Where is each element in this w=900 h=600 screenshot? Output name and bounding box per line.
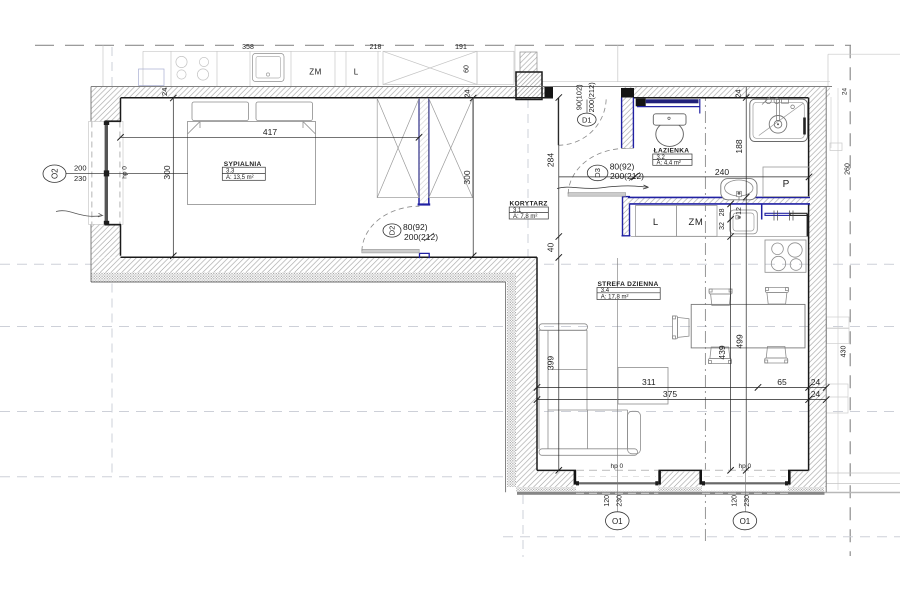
- svg-text:240: 240: [715, 167, 729, 177]
- svg-text:O1: O1: [612, 517, 623, 526]
- svg-text:90(102): 90(102): [574, 84, 583, 110]
- svg-text:L: L: [354, 68, 359, 77]
- svg-text:hp 0: hp 0: [610, 463, 623, 470]
- svg-text:3.1: 3.1: [513, 208, 522, 214]
- svg-text:191: 191: [455, 44, 467, 51]
- svg-text:230: 230: [616, 495, 623, 507]
- svg-text:hp 0: hp 0: [738, 463, 751, 470]
- svg-text:L: L: [653, 217, 658, 228]
- svg-text:80(92): 80(92): [610, 162, 635, 172]
- svg-text:200(212): 200(212): [404, 232, 438, 242]
- svg-text:D2: D2: [388, 226, 397, 236]
- svg-text:120: 120: [604, 495, 611, 507]
- svg-text:32: 32: [719, 222, 726, 230]
- svg-text:A: 4,4 m²: A: 4,4 m²: [657, 160, 681, 166]
- svg-text:358: 358: [242, 44, 254, 51]
- svg-text:200: 200: [74, 164, 87, 173]
- svg-text:ŁAZIENKA: ŁAZIENKA: [654, 148, 690, 155]
- svg-text:A: 13,5 m²: A: 13,5 m²: [226, 175, 254, 181]
- svg-text:284: 284: [546, 153, 556, 167]
- svg-text:A: 7,8 m²: A: 7,8 m²: [513, 214, 537, 220]
- svg-text:O1: O1: [740, 517, 751, 526]
- svg-text:230: 230: [744, 495, 751, 507]
- svg-text:24: 24: [160, 88, 169, 96]
- svg-text:40: 40: [546, 243, 556, 253]
- svg-text:311: 311: [642, 377, 656, 387]
- svg-text:60: 60: [464, 65, 471, 73]
- svg-text:24: 24: [842, 88, 849, 96]
- svg-text:24: 24: [811, 377, 821, 387]
- svg-text:80(92): 80(92): [403, 222, 428, 232]
- svg-text:24: 24: [734, 89, 743, 97]
- svg-text:3.4: 3.4: [601, 288, 610, 294]
- svg-text:200(212): 200(212): [587, 82, 596, 113]
- svg-text:499: 499: [735, 334, 745, 348]
- svg-text:430: 430: [841, 346, 848, 358]
- svg-text:417: 417: [263, 127, 277, 137]
- svg-text:28: 28: [719, 208, 726, 216]
- svg-text:ZM: ZM: [689, 217, 704, 228]
- svg-text:A: 17,8 m²: A: 17,8 m²: [601, 294, 629, 300]
- svg-text:218: 218: [370, 44, 382, 51]
- svg-text:230: 230: [74, 174, 87, 183]
- svg-text:120: 120: [731, 495, 738, 507]
- svg-text:O2: O2: [50, 168, 59, 179]
- svg-text:3.3: 3.3: [226, 169, 235, 175]
- svg-text:188: 188: [734, 139, 744, 153]
- svg-text:P: P: [783, 179, 790, 190]
- svg-text:439: 439: [717, 345, 727, 359]
- svg-text:STREFA DZIENNA: STREFA DZIENNA: [597, 281, 658, 288]
- svg-text:300: 300: [162, 165, 172, 179]
- svg-text:hp 0: hp 0: [121, 166, 128, 179]
- svg-text:D3: D3: [593, 168, 602, 178]
- svg-text:24: 24: [463, 89, 472, 97]
- svg-text:12: 12: [736, 207, 743, 215]
- svg-text:65: 65: [777, 377, 787, 387]
- svg-text:300: 300: [462, 170, 472, 184]
- svg-text:399: 399: [546, 356, 556, 370]
- svg-text:260: 260: [845, 163, 852, 175]
- svg-text:24: 24: [811, 389, 821, 399]
- svg-text:KORYTARZ: KORYTARZ: [509, 201, 547, 208]
- svg-text:200(212): 200(212): [610, 171, 644, 181]
- svg-text:D1: D1: [582, 115, 592, 124]
- svg-text:ZM: ZM: [309, 68, 322, 77]
- svg-text:375: 375: [663, 389, 677, 399]
